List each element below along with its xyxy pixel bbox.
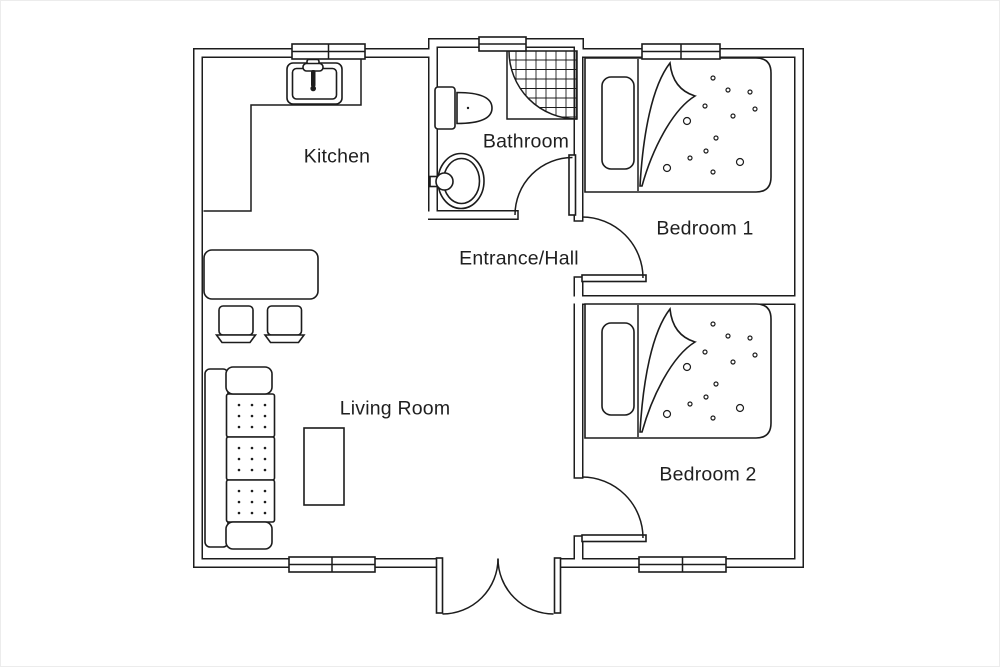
bed-icon (585, 58, 771, 192)
bedroom-2-door (582, 477, 646, 542)
bedroom-1-door (582, 217, 646, 282)
bedroom-1-window (642, 44, 720, 59)
room-label-entrance-hall: Entrance/Hall (459, 248, 579, 271)
room-label-bedroom-2: Bedroom 2 (659, 464, 756, 487)
bathroom-window (479, 37, 526, 51)
sofa-icon (205, 367, 275, 549)
room-label-living-room: Living Room (340, 398, 451, 421)
room-label-bathroom: Bathroom (483, 131, 569, 154)
kitchen-sink-icon (287, 60, 342, 105)
corner-shower-icon (507, 51, 577, 119)
coffee-table-icon (304, 428, 344, 505)
wash-basin-icon (430, 154, 484, 209)
bathroom-door (515, 155, 576, 215)
entrance-double-door (437, 558, 561, 614)
living-room-window (289, 557, 375, 572)
floor-plan-canvas: Kitchen Bathroom Entrance/Hall Bedroom 1… (0, 0, 1000, 667)
floor-plan-drawing (1, 1, 1000, 667)
bedroom-2-window (639, 557, 726, 572)
kitchen-window (292, 44, 365, 59)
chair-icon (217, 306, 256, 343)
room-label-kitchen: Kitchen (304, 146, 370, 169)
toilet-icon (435, 87, 492, 129)
dining-table-icon (204, 250, 318, 299)
bed-icon (585, 304, 771, 438)
room-label-bedroom-1: Bedroom 1 (656, 218, 753, 241)
chair-icon (265, 306, 304, 343)
